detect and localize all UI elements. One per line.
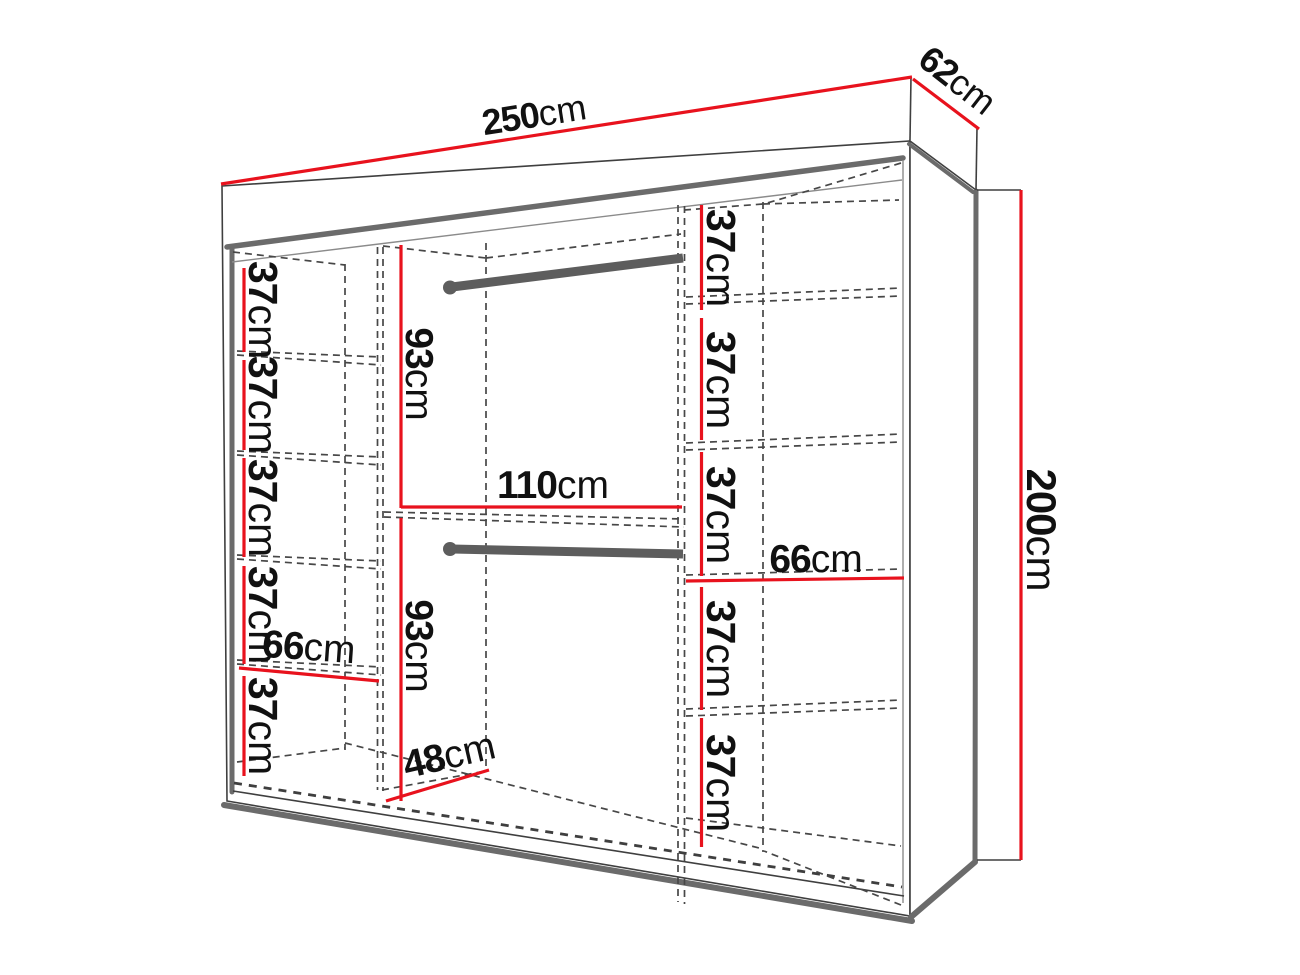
side-back-shadow-edge (975, 191, 976, 862)
label-right-gap-2-37cm: 37cm (698, 331, 744, 429)
label-left-gap-1-37cm: 37cm (240, 261, 286, 359)
wardrobe-body (222, 141, 976, 921)
diagram-canvas: 250cm 62cm 200cm 110cm 93cm 93cm 48cm 66… (0, 0, 1300, 975)
depth-extension-back (976, 128, 977, 190)
label-right-gap-3-37cm: 37cm (698, 466, 744, 564)
upper-rod-end-cap (443, 281, 457, 295)
label-left-gap-3-37cm: 37cm (240, 459, 286, 557)
label-height-200cm: 200cm (1018, 468, 1065, 591)
lower-hanging-rod (452, 549, 683, 554)
label-depth-62cm: 62cm (911, 38, 1004, 123)
right-side-face (910, 141, 976, 916)
label-upper-rod-93cm: 93cm (397, 327, 440, 420)
label-lower-rod-93cm: 93cm (397, 599, 440, 692)
label-left-gap-5-37cm: 37cm (240, 677, 286, 775)
label-right-shelf-66cm: 66cm (769, 538, 862, 581)
wardrobe-dimension-diagram: 250cm 62cm 200cm 110cm 93cm 93cm 48cm 66… (0, 0, 1300, 975)
label-right-gap-1-37cm: 37cm (698, 209, 744, 307)
lower-rod-end-cap (443, 542, 457, 556)
label-left-gap-2-37cm: 37cm (240, 356, 286, 454)
label-middle-width-110cm: 110cm (497, 464, 609, 507)
label-left-gap-4-37cm: 37cm (240, 566, 286, 664)
label-width-250cm: 250cm (479, 86, 589, 143)
width-extension-right (910, 77, 911, 140)
label-right-gap-5-37cm: 37cm (698, 734, 744, 832)
label-right-gap-4-37cm: 37cm (698, 600, 744, 698)
